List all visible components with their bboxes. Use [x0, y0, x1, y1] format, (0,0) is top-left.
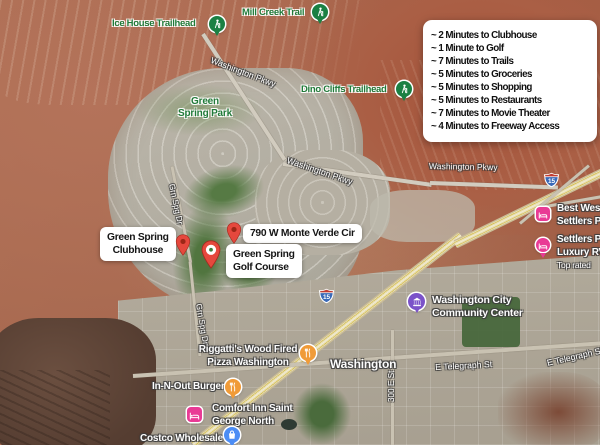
i15-shield-icon: 15: [543, 172, 560, 193]
road-label-300-e-st: 300 E St: [387, 371, 396, 403]
drive-times-info-box: ~ 2 Minutes to Clubhouse ~ 1 Minute to G…: [423, 20, 597, 142]
info-line: ~ 5 Minutes to Shopping: [431, 81, 589, 94]
shopping-bag-icon[interactable]: [224, 427, 240, 443]
poi-label-costco-wholesale[interactable]: Costco Wholesale: [140, 433, 223, 445]
road-label-e-telegraph-st-1: E Telegraph St: [435, 359, 492, 372]
golf-course-label: Green Spring Golf Course: [226, 244, 302, 278]
bed-icon[interactable]: [536, 207, 550, 221]
road-label-washington-pkwy-3: Washington Pkwy: [429, 161, 498, 172]
clubhouse-pin-icon[interactable]: [175, 234, 191, 261]
poi-label-riggattis-pizza[interactable]: Riggatti's Wood Fired Pizza Washington: [196, 344, 300, 369]
poi-label-ice-house-trailhead[interactable]: Ice House Trailhead: [112, 18, 196, 29]
golf-course-pin-icon[interactable]: [200, 240, 222, 274]
address-pin-icon[interactable]: [226, 222, 242, 249]
svg-text:15: 15: [548, 178, 556, 185]
terrain-mesa-bottom-right: [498, 372, 600, 445]
bed-icon[interactable]: [187, 407, 202, 422]
info-line: ~ 2 Minutes to Clubhouse: [431, 29, 589, 42]
hiker-icon[interactable]: [396, 81, 412, 97]
info-line: ~ 7 Minutes to Movie Theater: [431, 107, 589, 120]
poi-label-dino-cliffs-trailhead[interactable]: Dino Cliffs Trailhead: [301, 84, 387, 95]
poi-label-in-n-out-burger[interactable]: In-N-Out Burger: [152, 381, 225, 394]
i15-shield-icon: 15: [318, 288, 335, 309]
road-label-washington-pkwy-1: Washington Pkwy: [209, 55, 277, 89]
terrain-canyon-streaks: [0, 370, 110, 445]
info-line: ~ 5 Minutes to Restaurants: [431, 94, 589, 107]
restaurant-icon[interactable]: [225, 379, 241, 395]
poi-label-settlers-rv-park[interactable]: Settlers P Luxury RV Top rated: [557, 234, 600, 272]
terrain-golf-course-green-1: [178, 156, 271, 227]
svg-text:15: 15: [323, 294, 331, 301]
poi-label-community-center[interactable]: Washington City Community Center: [432, 294, 523, 319]
address-label: 790 W Monte Verde Cir: [243, 224, 362, 243]
hiker-icon[interactable]: [209, 16, 225, 32]
hiker-icon[interactable]: [312, 4, 328, 20]
map-canvas[interactable]: Washington Pkwy Washington Pkwy Washingt…: [0, 0, 600, 445]
info-line: ~ 5 Minutes to Groceries: [431, 68, 589, 81]
info-line: ~ 7 Minutes to Trails: [431, 55, 589, 68]
info-line: ~ 1 Minute to Golf: [431, 42, 589, 55]
bed-icon[interactable]: [536, 238, 550, 252]
poi-label-green-spring-park[interactable]: Green Spring Park: [173, 96, 237, 119]
poi-label-mill-creek-trail[interactable]: Mill Creek Trail: [242, 7, 304, 18]
clubhouse-label: Green Spring Clubhouse: [100, 227, 176, 261]
civic-building-icon[interactable]: [408, 293, 425, 310]
poi-label-best-western-settlers[interactable]: Best West Settlers P: [557, 203, 600, 228]
road-washington-pkwy-3: [430, 181, 558, 189]
restaurant-icon[interactable]: [300, 345, 316, 361]
terrain-city-park: [293, 383, 351, 445]
terrain-canyon-bottom-left: [0, 318, 156, 445]
poi-label-comfort-inn[interactable]: Comfort Inn Saint George North: [212, 403, 292, 428]
road-label-grn-spg-dr-1: Grn Spg Dr: [167, 183, 184, 225]
info-line: ~ 4 Minutes to Freeway Access: [431, 120, 589, 133]
city-label-washington: Washington: [330, 357, 396, 371]
